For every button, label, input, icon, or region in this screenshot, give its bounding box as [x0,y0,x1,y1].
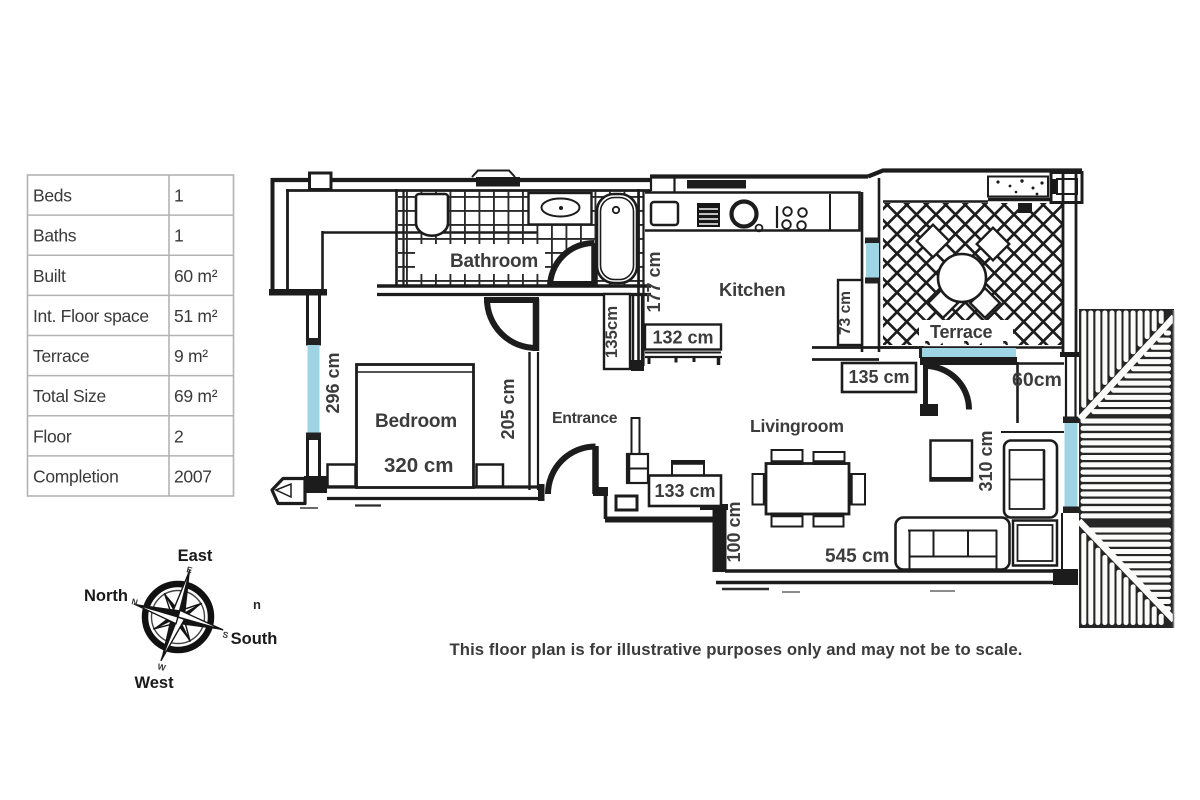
svg-text:60cm: 60cm [1012,369,1062,391]
svg-text:205 cm: 205 cm [498,378,518,439]
svg-text:310 cm: 310 cm [976,430,996,491]
svg-text:S: S [222,629,230,640]
svg-text:North: North [84,587,128,605]
svg-text:This floor plan is for illustr: This floor plan is for illustrative purp… [449,640,1022,659]
svg-text:69 m²: 69 m² [174,386,218,406]
svg-text:545 cm: 545 cm [825,546,889,567]
svg-text:73 cm: 73 cm [837,291,854,335]
svg-text:Int. Floor space: Int. Floor space [33,306,149,326]
svg-text:132 cm: 132 cm [652,328,713,348]
svg-text:Floor: Floor [33,426,72,446]
svg-text:Terrace: Terrace [930,322,993,342]
svg-text:2007: 2007 [174,466,212,486]
svg-text:East: East [178,547,213,565]
svg-text:177 cm: 177 cm [644,251,664,312]
svg-text:320 cm: 320 cm [384,454,454,477]
svg-text:1: 1 [174,226,183,246]
svg-text:Bathroom: Bathroom [450,251,538,272]
svg-text:Baths: Baths [33,226,77,246]
svg-text:Bedroom: Bedroom [375,411,457,432]
svg-text:Beds: Beds [33,186,72,206]
svg-text:Livingroom: Livingroom [750,416,844,436]
svg-text:n: n [253,597,261,612]
svg-text:51 m²: 51 m² [174,306,218,326]
svg-text:Entrance: Entrance [552,410,618,427]
svg-text:Total Size: Total Size [33,386,106,406]
svg-text:Completion: Completion [33,466,119,486]
svg-text:9 m²: 9 m² [174,346,208,366]
svg-text:W: W [157,661,168,673]
svg-text:135cm: 135cm [602,306,621,358]
svg-text:1: 1 [174,186,183,206]
svg-text:Terrace: Terrace [33,346,89,366]
svg-text:135 cm: 135 cm [848,367,909,387]
svg-text:2: 2 [174,426,183,446]
svg-text:100 cm: 100 cm [724,501,744,562]
svg-text:West: West [134,674,174,692]
svg-text:133 cm: 133 cm [654,481,715,501]
svg-text:Built: Built [33,266,66,286]
svg-text:South: South [231,630,278,648]
svg-text:E: E [186,564,194,575]
svg-text:296 cm: 296 cm [323,352,343,413]
svg-text:Kitchen: Kitchen [719,279,785,300]
svg-text:60 m²: 60 m² [174,266,218,286]
